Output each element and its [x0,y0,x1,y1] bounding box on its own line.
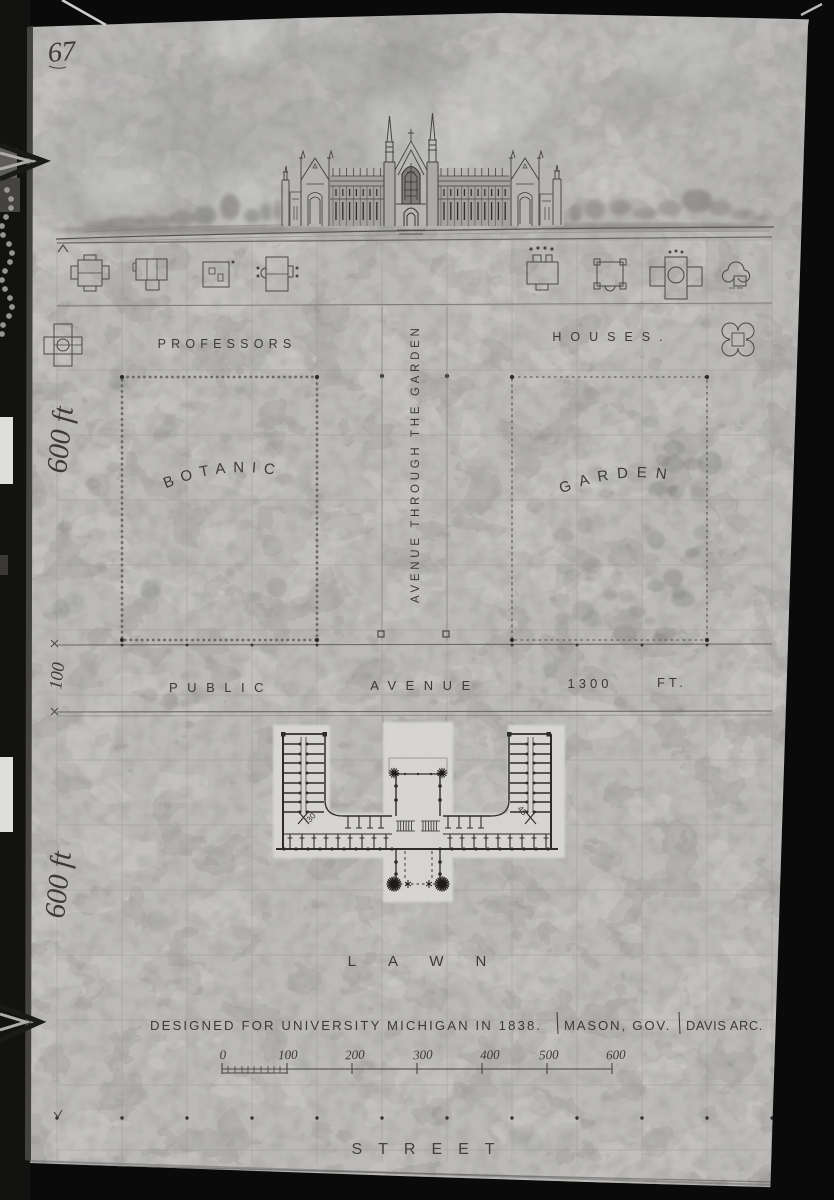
svg-text:100: 100 [278,1047,299,1063]
svg-text:AVENUE: AVENUE [370,678,480,693]
svg-text:300: 300 [412,1047,434,1063]
svg-text:AVENUE THROUGH THE GARDEN: AVENUE THROUGH THE GARDEN [410,325,422,603]
svg-text:FT.: FT. [657,675,687,690]
svg-text:100: 100 [45,661,68,690]
svg-text:LAWN: LAWN [348,953,519,970]
svg-text:PROFESSORS: PROFESSORS [158,337,297,351]
svg-text:0: 0 [219,1047,227,1062]
svg-text:200: 200 [345,1047,366,1063]
svg-text:DESIGNED FOR UNIVERSITY MICHIG: DESIGNED FOR UNIVERSITY MICHIGAN IN 1838… [150,1018,542,1033]
svg-text:DAVIS ARC.: DAVIS ARC. [686,1018,763,1033]
svg-text:PUBLIC: PUBLIC [169,680,273,695]
svg-text:1300: 1300 [568,676,613,691]
svg-text:400: 400 [480,1047,501,1063]
svg-text:HOUSES.: HOUSES. [552,330,671,344]
svg-text:500: 500 [539,1047,560,1063]
svg-text:MASON, GOV.: MASON, GOV. [564,1018,671,1033]
svg-text:600: 600 [606,1047,627,1063]
svg-text:STREET: STREET [351,1141,510,1158]
svg-text:67: 67 [46,36,78,69]
